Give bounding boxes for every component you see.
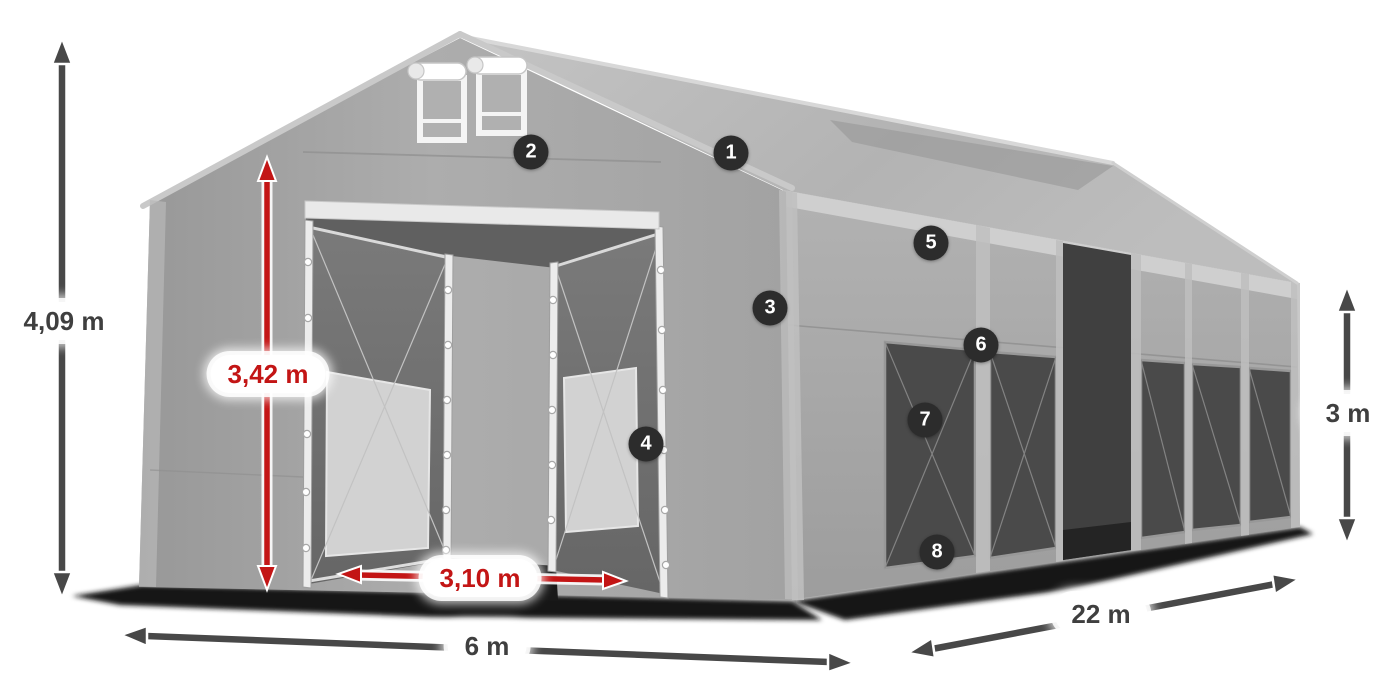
tent-dimension-diagram: 4,09 m 3,42 m 3,10 m 6 m 22 m 3 m 1 2 3 …: [0, 0, 1400, 700]
callout-badge-8[interactable]: 8: [920, 535, 955, 570]
callout-badge-2[interactable]: 2: [514, 135, 549, 170]
callout-badge-7[interactable]: 7: [908, 403, 943, 438]
dimension-label-door-width: 3,10 m: [423, 559, 538, 597]
roof-vent: [467, 57, 527, 133]
callout-badge-5[interactable]: 5: [914, 226, 949, 261]
dimension-label-door-height: 3,42 m: [211, 355, 326, 393]
dimension-label-front-width: 6 m: [448, 627, 527, 665]
door-mesh-window: [326, 372, 430, 556]
dimension-label-side-length: 22 m: [1054, 595, 1147, 633]
entrance-door-right: [552, 234, 664, 594]
tent-illustration: [0, 0, 1400, 700]
dimension-label-total-height: 4,09 m: [7, 302, 122, 340]
callout-badge-3[interactable]: 3: [753, 291, 788, 326]
door-mesh-window: [564, 368, 638, 532]
callout-badge-4[interactable]: 4: [629, 427, 664, 462]
dimension-label-side-height: 3 m: [1309, 394, 1388, 432]
callout-badge-1[interactable]: 1: [714, 136, 749, 171]
callout-badge-6[interactable]: 6: [964, 328, 999, 363]
side-open-section: [1063, 243, 1131, 560]
entrance-door-left: [309, 228, 450, 584]
